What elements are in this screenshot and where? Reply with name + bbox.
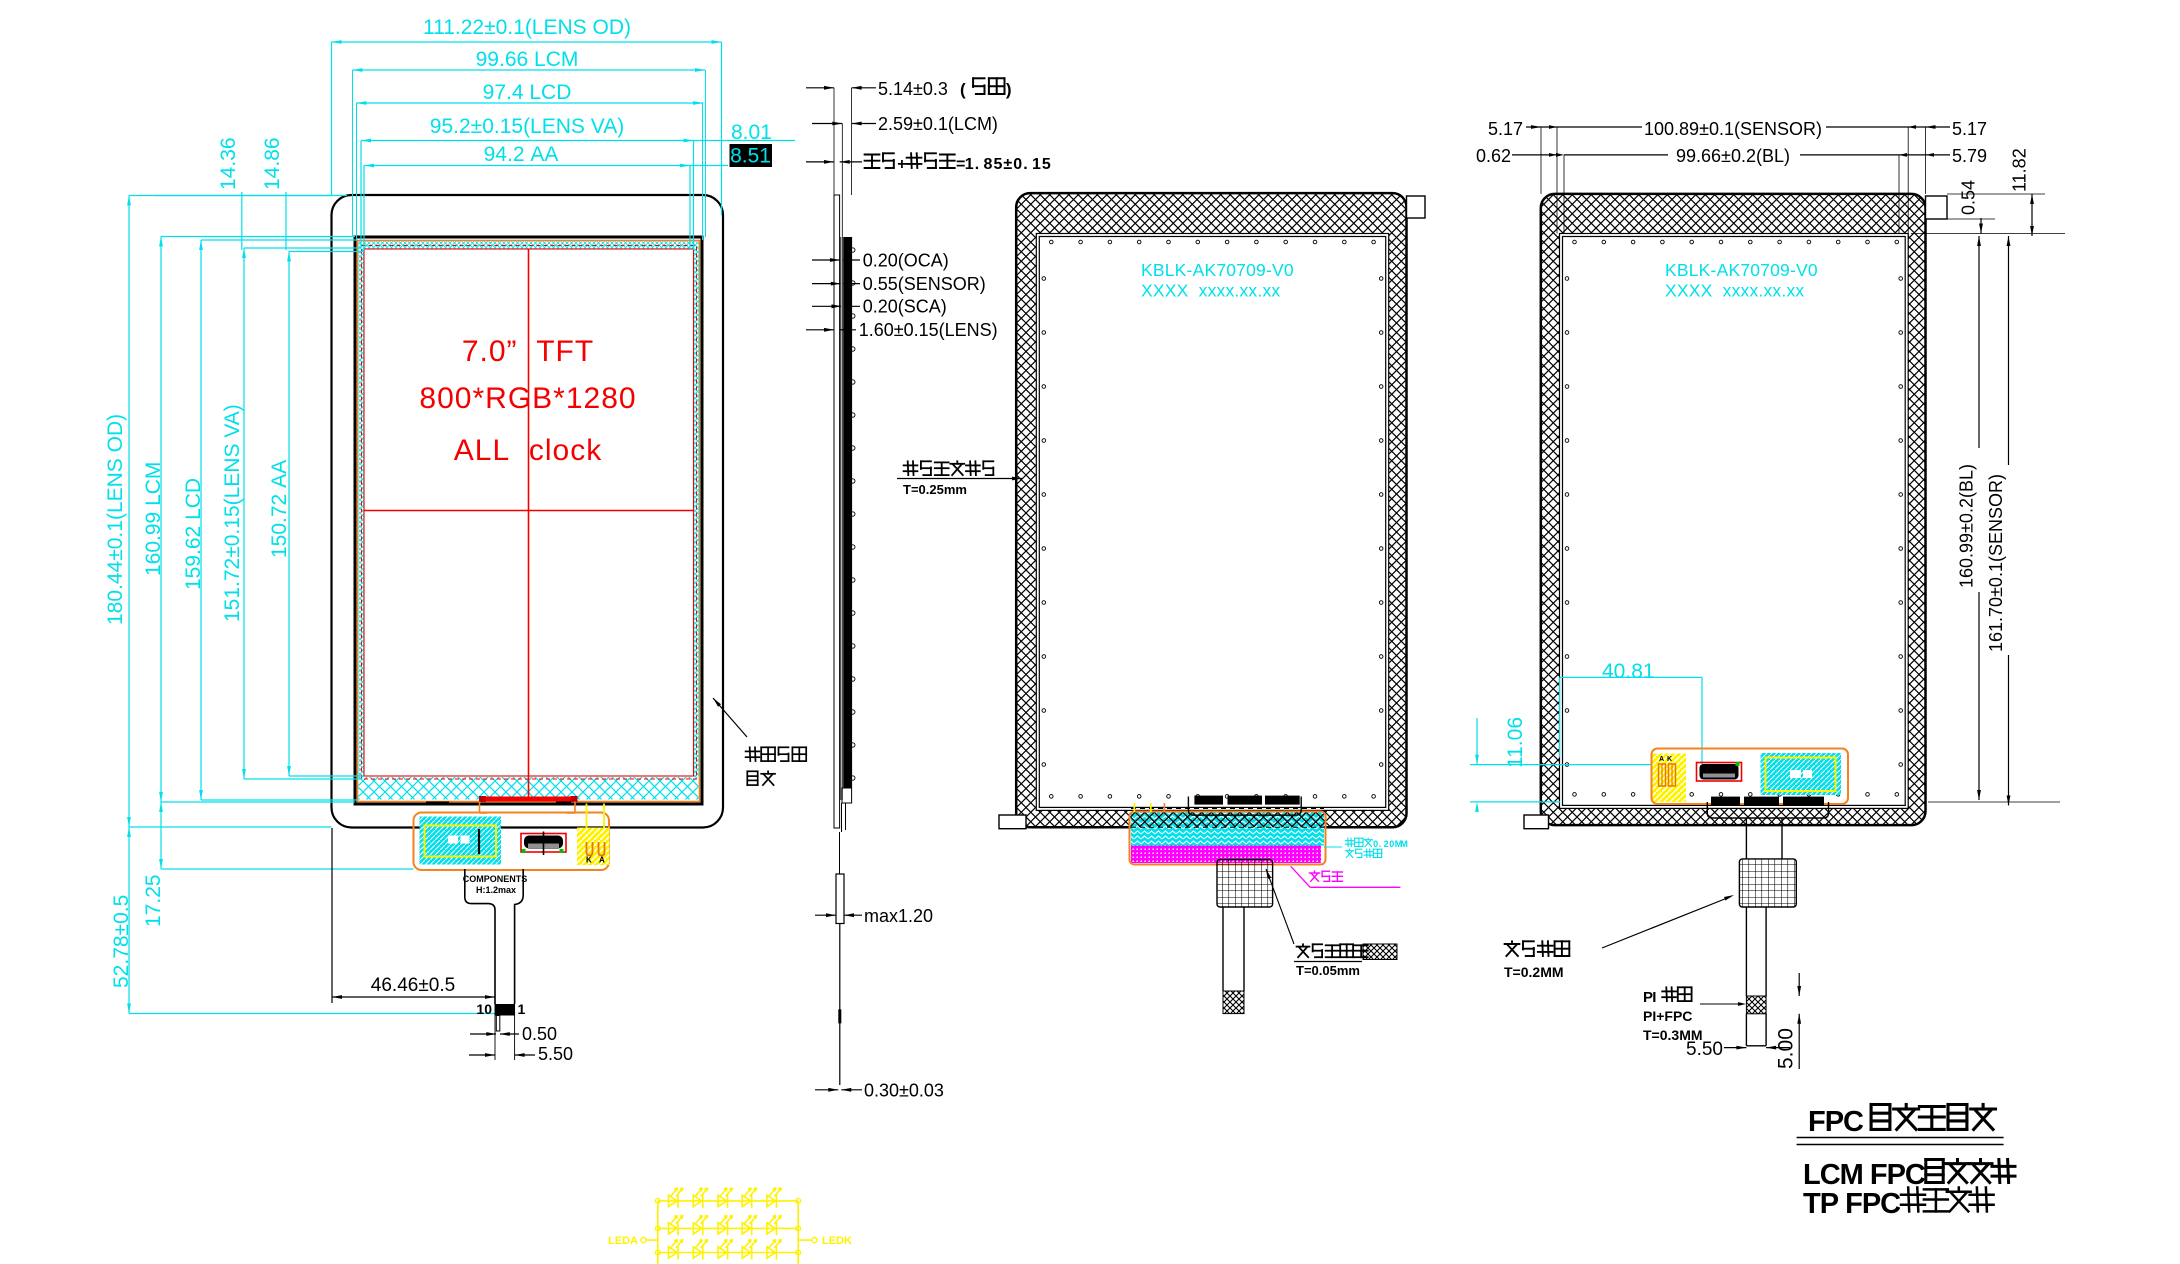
svg-text:FPC: FPC <box>1808 1106 1864 1138</box>
svg-text:.: . <box>975 156 979 173</box>
svg-text:17.25: 17.25 <box>142 874 165 927</box>
svg-text:0: 0 <box>1389 839 1394 849</box>
svg-text:H:1.2max: H:1.2max <box>476 885 516 895</box>
svg-text:5.00: 5.00 <box>1775 1028 1798 1069</box>
svg-text:±: ± <box>1003 156 1012 173</box>
svg-text:K: K <box>586 856 592 865</box>
svg-text:KBLK-AK70709-V0: KBLK-AK70709-V0 <box>1665 260 1818 280</box>
svg-text:1: 1 <box>518 1001 526 1017</box>
svg-text:A: A <box>1659 756 1664 763</box>
svg-text:T=0.2MM: T=0.2MM <box>1504 964 1564 980</box>
svg-text:(: ( <box>960 80 966 99</box>
svg-text:8.51: 8.51 <box>730 145 771 168</box>
svg-text:LEDA: LEDA <box>608 1235 638 1247</box>
svg-text:XXXX xxxx.xx.xx: XXXX xxxx.xx.xx <box>1141 281 1280 301</box>
svg-text:5.50: 5.50 <box>538 1044 573 1064</box>
svg-text:160.99±0.2(BL): 160.99±0.2(BL) <box>1957 464 1977 588</box>
svg-text:XXXX xxxx.xx.xx: XXXX xxxx.xx.xx <box>1665 281 1804 301</box>
svg-text:94.2 AA: 94.2 AA <box>484 143 559 166</box>
svg-text:14.36: 14.36 <box>217 137 240 190</box>
svg-text:5.14±0.3: 5.14±0.3 <box>878 79 948 99</box>
svg-text:0: 0 <box>1373 839 1378 849</box>
svg-text:5: 5 <box>1042 156 1051 173</box>
svg-text:max1.20: max1.20 <box>864 906 933 926</box>
svg-text:+: + <box>897 156 906 173</box>
svg-text:): ) <box>1006 80 1012 99</box>
svg-text:11.06: 11.06 <box>1504 717 1527 768</box>
svg-text:111.22±0.1(LENS OD): 111.22±0.1(LENS OD) <box>423 16 631 39</box>
svg-text:99.66±0.2(BL): 99.66±0.2(BL) <box>1676 146 1790 166</box>
svg-text:.: . <box>1379 839 1382 849</box>
svg-text:800*RGB*1280: 800*RGB*1280 <box>419 382 636 415</box>
svg-text:A: A <box>599 856 605 865</box>
svg-text:8.01: 8.01 <box>731 121 772 144</box>
svg-text:0.50: 0.50 <box>522 1024 557 1044</box>
svg-text:M: M <box>1400 839 1408 849</box>
svg-text:100.89±0.1(SENSOR): 100.89±0.1(SENSOR) <box>1644 119 1822 139</box>
svg-text:0.20(OCA): 0.20(OCA) <box>863 251 949 271</box>
svg-text:KBLK-AK70709-V0: KBLK-AK70709-V0 <box>1141 260 1294 280</box>
svg-text:I: I <box>1652 989 1656 1006</box>
svg-text:5: 5 <box>993 156 1002 173</box>
svg-text:1.60±0.15(LENS): 1.60±0.15(LENS) <box>859 320 998 340</box>
svg-text:97.4 LCD: 97.4 LCD <box>483 81 572 104</box>
svg-text:COMPONENTS: COMPONENTS <box>463 874 528 884</box>
svg-text:0.30±0.03: 0.30±0.03 <box>864 1081 944 1101</box>
svg-text:0.62: 0.62 <box>1476 146 1511 166</box>
svg-text:2: 2 <box>1384 839 1389 849</box>
svg-text:46.46±0.5: 46.46±0.5 <box>371 975 455 996</box>
svg-text:14.86: 14.86 <box>261 137 284 190</box>
svg-text:10: 10 <box>476 1001 492 1017</box>
svg-text:40.81: 40.81 <box>1602 660 1655 683</box>
svg-text:LEDK: LEDK <box>822 1235 852 1247</box>
svg-text:11.82: 11.82 <box>2010 148 2030 192</box>
svg-text:.: . <box>1023 156 1027 173</box>
svg-text:2.59±0.1(LCM): 2.59±0.1(LCM) <box>878 114 998 134</box>
svg-text:T=0.05mm: T=0.05mm <box>1296 963 1360 978</box>
svg-text:1: 1 <box>1032 156 1041 173</box>
svg-text:PI+FPC: PI+FPC <box>1643 1008 1692 1024</box>
svg-text:0.54: 0.54 <box>1959 180 1979 215</box>
svg-text:LCM FPC: LCM FPC <box>1803 1159 1926 1191</box>
svg-text:150.72 AA: 150.72 AA <box>268 460 291 558</box>
svg-text:0.55(SENSOR): 0.55(SENSOR) <box>863 274 986 294</box>
svg-text:T=0.25mm: T=0.25mm <box>903 482 967 497</box>
svg-text:TP FPC: TP FPC <box>1803 1188 1901 1220</box>
svg-text:0.20(SCA): 0.20(SCA) <box>863 297 947 317</box>
svg-text:151.72±0.15(LENS VA): 151.72±0.15(LENS VA) <box>221 404 244 622</box>
svg-text:1: 1 <box>965 156 974 173</box>
svg-text:5.17: 5.17 <box>1952 119 1987 139</box>
svg-text:ALL clock: ALL clock <box>454 434 602 467</box>
svg-text:8: 8 <box>984 156 993 173</box>
svg-text:5.17: 5.17 <box>1488 119 1523 139</box>
svg-text:95.2±0.15(LENS VA): 95.2±0.15(LENS VA) <box>430 115 624 138</box>
svg-text:99.66 LCM: 99.66 LCM <box>476 48 579 71</box>
svg-text:K: K <box>1667 756 1672 763</box>
svg-text:5.50: 5.50 <box>1686 1039 1723 1060</box>
svg-text:0: 0 <box>1013 156 1022 173</box>
svg-text:180.44±0.1(LENS OD): 180.44±0.1(LENS OD) <box>104 414 127 625</box>
svg-text:161.70±0.1(SENSOR): 161.70±0.1(SENSOR) <box>1986 474 2006 652</box>
svg-text:5.79: 5.79 <box>1952 146 1987 166</box>
svg-text:7.0” TFT: 7.0” TFT <box>462 335 594 368</box>
